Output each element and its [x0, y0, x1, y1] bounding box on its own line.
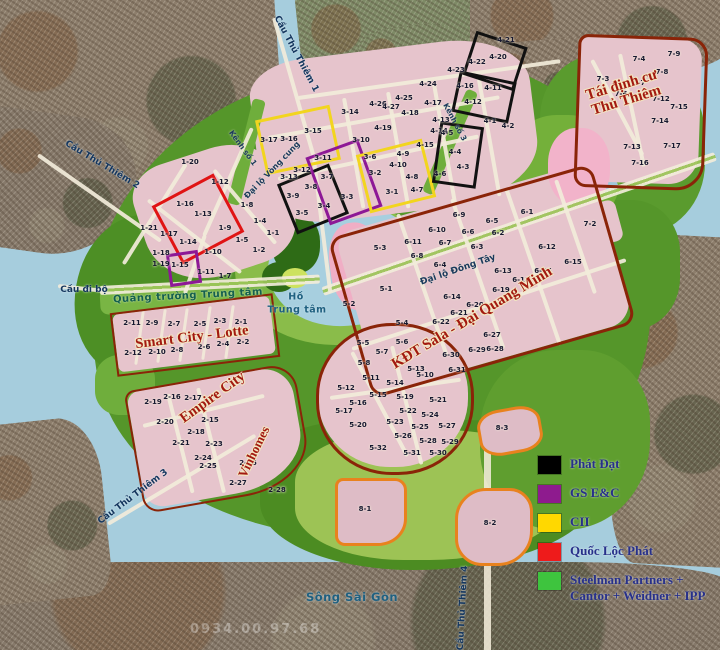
thu-thiem-master-plan-map: Phát ĐạtGS E&CCIIQuốc Lộc PhátSteelman P…: [0, 0, 720, 650]
lot-label: 4-4: [449, 148, 462, 156]
legend-color-swatch: [538, 485, 561, 503]
lot-label: 7-15: [670, 103, 688, 111]
lot-label: 1-17: [160, 230, 178, 238]
lot-label: 2-20: [156, 418, 174, 426]
lot-label: 6-12: [538, 243, 556, 251]
legend-label: Quốc Lộc Phát: [570, 543, 653, 559]
lot-label: 3-2: [369, 169, 382, 177]
lot-label: 3-7: [321, 173, 334, 181]
lot-label: 4-1: [484, 117, 497, 125]
lot-label: 6-14: [443, 293, 461, 301]
lot-label: 4-17: [424, 99, 442, 107]
lot-label: 4-24: [419, 80, 437, 88]
lot-label: 5-10: [416, 371, 434, 379]
lot-label: 4-16: [456, 82, 474, 90]
lot-label: 1-21: [140, 224, 158, 232]
lot-label: 4-5: [441, 129, 454, 137]
lot-label: 4-3: [457, 163, 470, 171]
lot-label: 2-18: [187, 428, 205, 436]
lot-label: 6-4: [434, 261, 447, 269]
legend-item: Phát Đạt: [538, 456, 720, 474]
lot-label: 2-25: [199, 462, 217, 470]
lot-label: 7-4: [633, 55, 646, 63]
lot-label: 5-19: [396, 393, 414, 401]
lot-label: 4-11: [484, 84, 502, 92]
lot-label: 6-13: [494, 267, 512, 275]
lot-label: 5-25: [411, 423, 429, 431]
lot-label: 3-3: [341, 193, 354, 201]
lot-label: 2-7: [168, 320, 181, 328]
lot-label: 7-17: [663, 142, 681, 150]
lot-label: 1-19: [152, 260, 170, 268]
lot-label: 2-11: [123, 319, 141, 327]
legend-color-swatch: [538, 543, 561, 561]
lot-label: 2-19: [144, 398, 162, 406]
lot-label: 6-30: [442, 351, 460, 359]
lot-label: 2-24: [194, 454, 212, 462]
lot-label: 5-27: [438, 422, 456, 430]
lot-label: 5-1: [380, 285, 393, 293]
lot-label: 5-12: [337, 384, 355, 392]
legend-item: CII: [538, 514, 720, 532]
lot-label: 3-1: [386, 188, 399, 196]
lot-label: 1-12: [211, 178, 229, 186]
lot-label: 5-24: [421, 411, 439, 419]
lot-label: 6-27: [483, 331, 501, 339]
watermark: 0934.00.97.68: [190, 622, 321, 637]
lot-label: 4-18: [401, 109, 419, 117]
lot-label: 7-2: [584, 220, 597, 228]
satellite-area-bottom-left: [0, 414, 114, 605]
lot-label: 5-6: [396, 338, 409, 346]
lot-label: 5-2: [343, 300, 356, 308]
lot-label: 1-4: [254, 217, 267, 225]
lot-label: 4-10: [389, 161, 407, 169]
lot-label: 1-8: [241, 201, 254, 209]
legend-item: GS E&C: [538, 485, 720, 503]
lot-label: 5-16: [349, 399, 367, 407]
lot-label: 4-12: [464, 98, 482, 106]
lot-label: 3-13: [280, 173, 298, 181]
lot-label: 6-7: [439, 239, 452, 247]
legend: Phát ĐạtGS E&CCIIQuốc Lộc PhátSteelman P…: [538, 456, 720, 615]
lot-label: 6-3: [471, 243, 484, 251]
lot-label: 4-27: [382, 103, 400, 111]
lot-label: 2-23: [205, 440, 223, 448]
lot-label: 5-22: [399, 407, 417, 415]
lot-label: 6-10: [428, 226, 446, 234]
lot-label: 6-9: [453, 211, 466, 219]
lot-label: 3-10: [352, 136, 370, 144]
lot-label: 3-5: [296, 209, 309, 217]
lot-label: 3-9: [287, 192, 300, 200]
lot-label: 5-26: [394, 432, 412, 440]
lot-label: 2-28: [268, 486, 286, 494]
lot-label: 4-23: [447, 66, 465, 74]
lot-label: 5-17: [335, 407, 353, 415]
water-label: Sông Sài Gòn: [306, 590, 398, 604]
lot-label: 5-15: [369, 391, 387, 399]
lot-label: 5-4: [396, 319, 409, 327]
lot-label: 5-30: [429, 449, 447, 457]
lot-label: 5-32: [369, 444, 387, 452]
lot-label: 3-14: [341, 108, 359, 116]
lot-label: 1-7: [219, 272, 232, 280]
lot-label: 6-15: [564, 258, 582, 266]
lot-label: 8-3: [496, 424, 509, 432]
lot-label: 7-9: [668, 50, 681, 58]
legend-color-swatch: [538, 514, 561, 532]
lot-label: 5-23: [386, 418, 404, 426]
lot-label: 1-11: [197, 268, 215, 276]
lot-label: 4-9: [397, 150, 410, 158]
legend-color-swatch: [538, 456, 561, 474]
lot-label: 1-9: [219, 224, 232, 232]
legend-label: Phát Đạt: [570, 456, 619, 472]
lot-label: 6-6: [462, 228, 475, 236]
lot-label: 5-29: [441, 438, 459, 446]
lot-label: 7-14: [651, 117, 669, 125]
lot-label: 2-27: [229, 479, 247, 487]
lot-label: 5-8: [358, 359, 371, 367]
lot-label: 8-2: [484, 519, 497, 527]
lot-label: 4-20: [489, 53, 507, 61]
lot-label: 6-31: [448, 366, 466, 374]
legend-label: Steelman Partners + Cantor + Weidner + I…: [570, 572, 720, 604]
lot-label: 2-3: [214, 317, 227, 325]
lot-label: 1-1: [267, 229, 280, 237]
lot-label: 1-14: [179, 238, 197, 246]
lot-label: 4-7: [411, 186, 424, 194]
lot-label: 7-16: [631, 159, 649, 167]
lot-label: 6-28: [486, 345, 504, 353]
lot-label: 6-8: [411, 252, 424, 260]
lot-label: 4-15: [416, 141, 434, 149]
lot-label: 4-6: [434, 170, 447, 178]
lot-label: 5-31: [403, 449, 421, 457]
lot-label: 6-1: [521, 208, 534, 216]
legend-item: Quốc Lộc Phát: [538, 543, 720, 561]
lot-label: 1-13: [194, 210, 212, 218]
lot-label: 7-13: [623, 143, 641, 151]
lot-label: 5-11: [362, 374, 380, 382]
water-label: Hồ: [288, 292, 303, 303]
legend-label: GS E&C: [570, 485, 619, 501]
lot-label: 4-8: [406, 173, 419, 181]
bridge-label: Cầu đi bộ: [60, 285, 108, 295]
lot-label: 1-2: [253, 246, 266, 254]
lot-label: 2-21: [172, 439, 190, 447]
lot-label: 3-17: [260, 136, 278, 144]
legend-item: Steelman Partners + Cantor + Weidner + I…: [538, 572, 720, 604]
lot-label: 2-15: [201, 416, 219, 424]
lot-label: 5-20: [349, 421, 367, 429]
lot-label: 3-15: [304, 127, 322, 135]
lot-label: 6-29: [468, 346, 486, 354]
lot-label: 1-5: [236, 236, 249, 244]
lot-label: 4-21: [497, 36, 515, 44]
lot-label: 1-15: [171, 261, 189, 269]
lot-label: 3-8: [305, 183, 318, 191]
lot-label: 4-2: [502, 122, 515, 130]
lot-label: 2-16: [163, 393, 181, 401]
lot-label: 5-14: [386, 379, 404, 387]
lot-label: 4-22: [468, 58, 486, 66]
lot-label: 3-4: [318, 202, 331, 210]
lot-label: 3-6: [364, 153, 377, 161]
lot-label: 6-11: [404, 238, 422, 246]
legend-color-swatch: [538, 572, 561, 590]
lot-label: 1-18: [152, 249, 170, 257]
lot-label: 5-21: [429, 396, 447, 404]
lot-label: 5-3: [374, 244, 387, 252]
lot-label: 4-25: [395, 94, 413, 102]
lot-label: 2-9: [146, 319, 159, 327]
outline-lot-8-2: [455, 488, 533, 566]
lot-label: 4-19: [374, 124, 392, 132]
lot-label: 5-28: [419, 437, 437, 445]
lot-label: 1-16: [176, 200, 194, 208]
lot-label: 7-8: [656, 68, 669, 76]
lot-label: 1-20: [181, 158, 199, 166]
lot-label: 3-11: [314, 154, 332, 162]
lot-label: 5-7: [376, 348, 389, 356]
legend-label: CII: [570, 514, 590, 530]
water-label: Trung tâm: [267, 305, 326, 316]
lot-label: 6-5: [486, 217, 499, 225]
lot-label: 6-2: [492, 229, 505, 237]
lot-label: 1-10: [204, 248, 222, 256]
lot-label: 5-5: [357, 339, 370, 347]
lot-label: 8-1: [359, 505, 372, 513]
